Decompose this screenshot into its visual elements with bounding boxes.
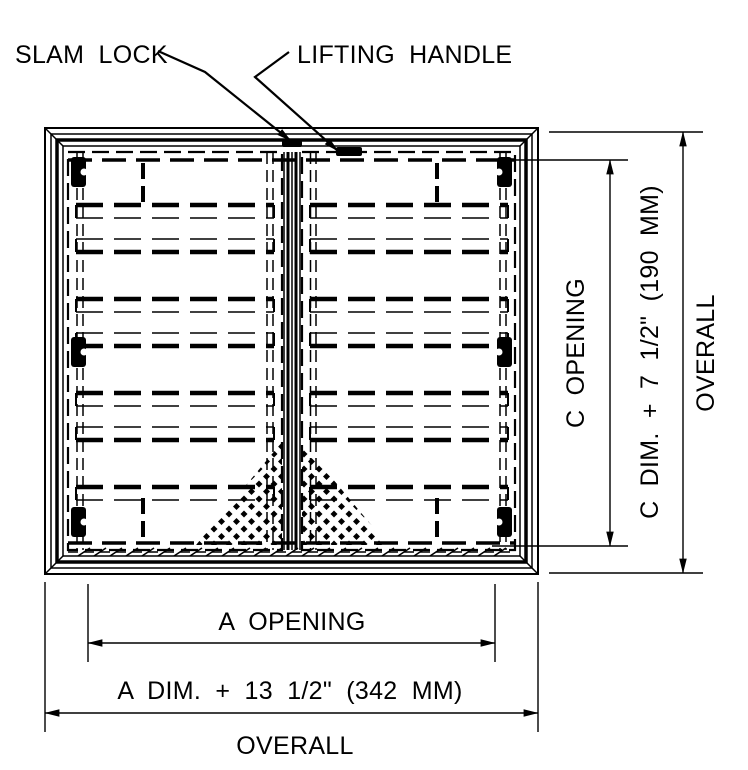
c-overall-formula-label: C DIM. + 7 1/2" (190 MM): [636, 185, 664, 519]
lifting-handle-label: LIFTING HANDLE: [297, 41, 512, 69]
lifting-handle-hardware: [336, 147, 362, 156]
page: { "drawing": { "callouts": { "slam_lock"…: [0, 0, 748, 770]
a-opening-label: A OPENING: [218, 608, 365, 636]
gusset-triangle-left: [196, 442, 282, 545]
c-opening-label: C OPENING: [562, 278, 590, 428]
slam-lock-label: SLAM LOCK: [15, 41, 168, 69]
dimension-lines: [45, 132, 703, 732]
center-meeting-stiles: [284, 152, 300, 550]
bottom-overall-label: OVERALL: [236, 732, 353, 760]
slam-lock-hardware: [282, 139, 302, 147]
drawing-canvas: SLAM LOCK LIFTING HANDLE C OPENING C DIM…: [0, 0, 748, 770]
gusset-triangle-right: [302, 442, 388, 545]
right-overall-label: OVERALL: [692, 294, 720, 411]
technical-drawing: SLAM LOCK LIFTING HANDLE C OPENING C DIM…: [0, 0, 748, 770]
a-overall-formula-label: A DIM. + 13 1/2" (342 MM): [117, 677, 462, 705]
panel-center-stubs: [143, 163, 437, 541]
extension-lines: [45, 132, 703, 732]
